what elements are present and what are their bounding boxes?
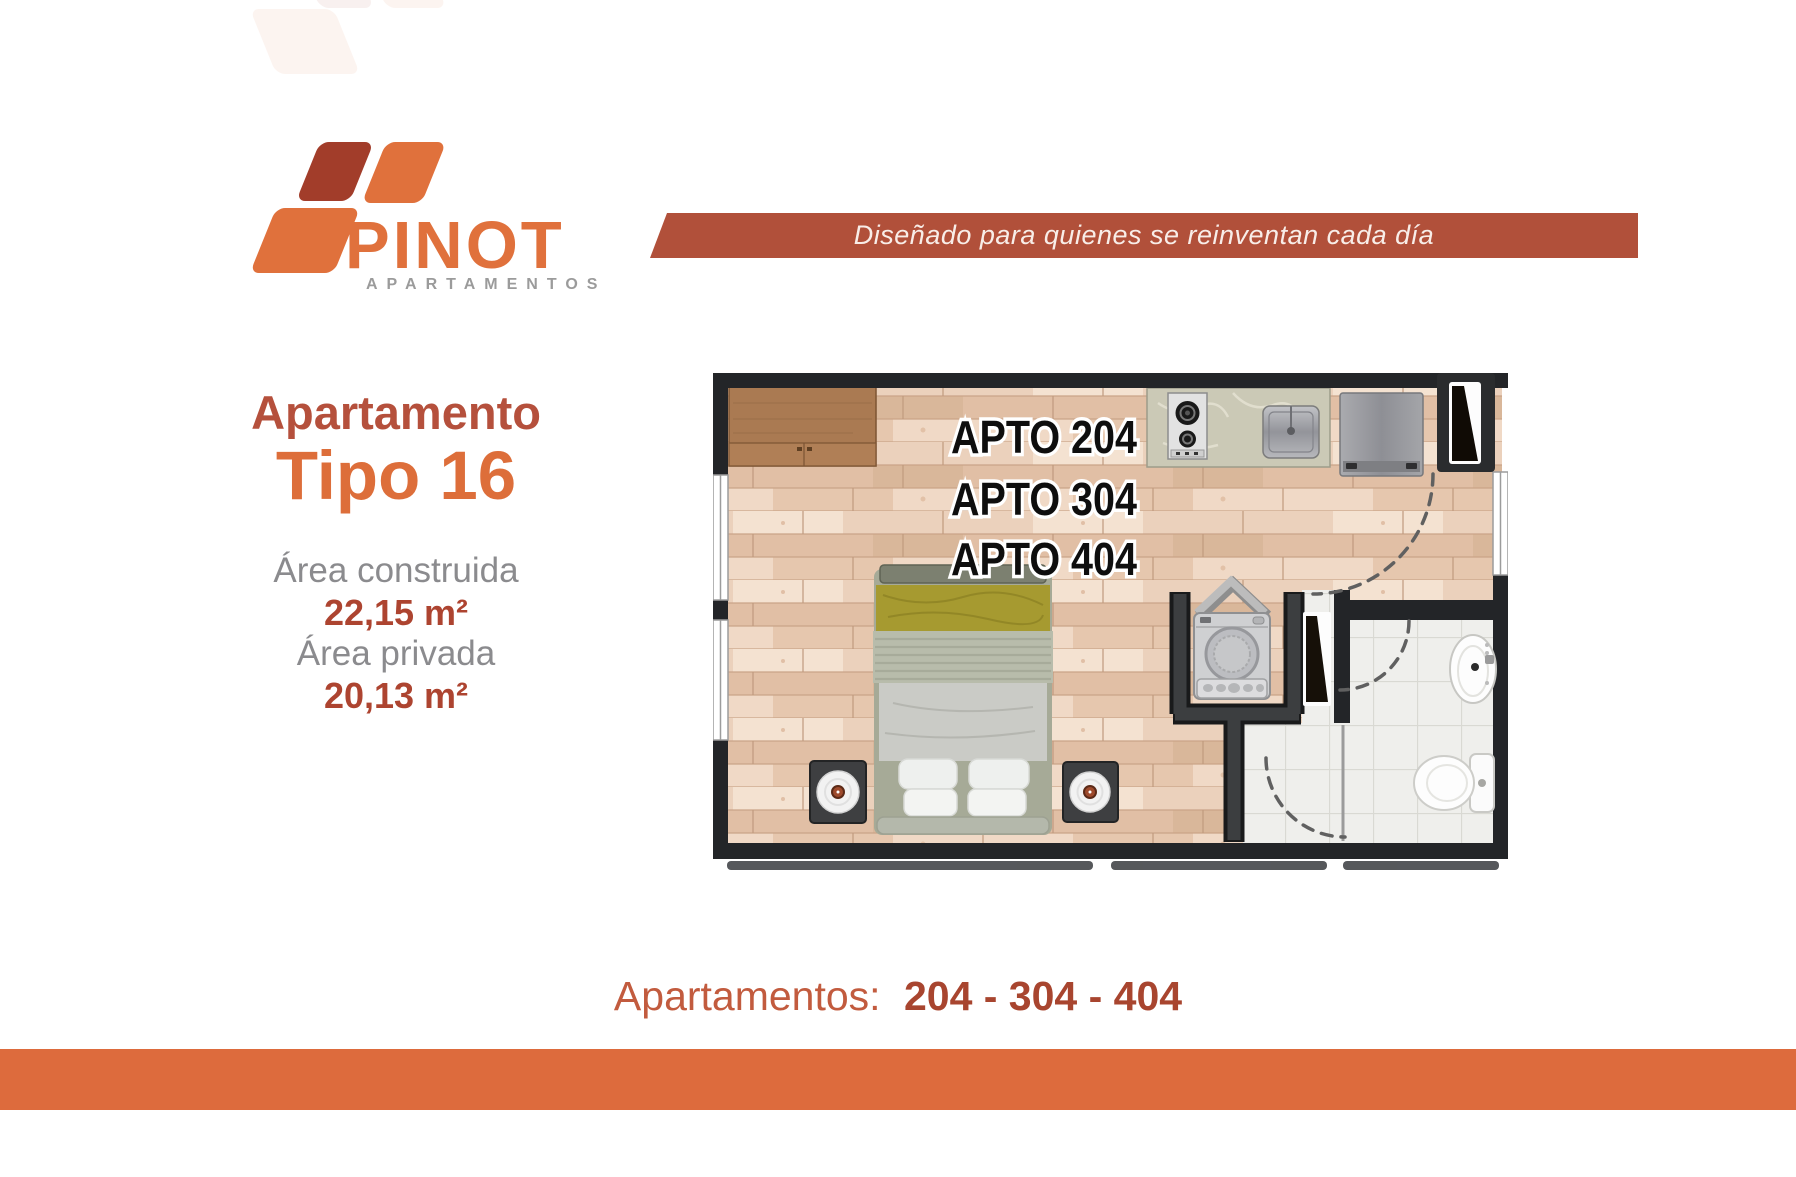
apartment-title-line2: Tipo 16 bbox=[178, 440, 614, 512]
nightstand-left bbox=[810, 761, 866, 823]
logo-parallelogram-dark-icon bbox=[296, 142, 374, 201]
plan-shadow bbox=[727, 861, 1499, 870]
tagline-banner: Diseñado para quienes se reinventan cada… bbox=[650, 213, 1638, 258]
logo-subtitle-text: APARTAMENTOS bbox=[366, 277, 606, 293]
pinot-logo: PINOT APARTAMENTOS bbox=[0, 0, 700, 280]
unit-labels: APTO 204 APTO 304 APTO 404 bbox=[951, 411, 1137, 585]
entry-door bbox=[1437, 373, 1495, 472]
footer-unit-numbers: 204 - 304 - 404 bbox=[904, 973, 1182, 1019]
area-construida-value: 22,15 m² bbox=[178, 594, 614, 632]
unit-label-204: APTO 204 bbox=[951, 411, 1137, 463]
area-privada-value: 20,13 m² bbox=[178, 677, 614, 715]
footer-units-line: Apartamentos: 204 - 304 - 404 bbox=[0, 974, 1796, 1019]
bathroom-door bbox=[1303, 612, 1331, 706]
wardrobe-cabinet bbox=[729, 387, 876, 466]
tagline-text: Diseñado para quienes se reinventan cada… bbox=[854, 220, 1434, 251]
bed-duvet bbox=[879, 683, 1047, 761]
toilet-icon bbox=[1414, 754, 1494, 812]
nightstand-right bbox=[1063, 762, 1118, 822]
cooktop-icon bbox=[1168, 393, 1207, 459]
kitchen-counter bbox=[1147, 376, 1330, 467]
floorplan: APTO 204 APTO 304 APTO 404 bbox=[713, 373, 1508, 873]
logo-brand-text: PINOT bbox=[345, 212, 565, 279]
unit-label-404: APTO 404 bbox=[951, 533, 1137, 585]
area-privada-label: Área privada bbox=[178, 636, 614, 673]
apartment-title-line1: Apartamento bbox=[178, 388, 614, 437]
double-bed bbox=[873, 565, 1053, 835]
footer-bar bbox=[0, 1049, 1796, 1110]
logo-parallelogram-orange-bottom-icon bbox=[250, 208, 360, 273]
washing-machine-icon bbox=[1194, 613, 1270, 699]
fridge-icon bbox=[1340, 393, 1423, 476]
bed-headboard bbox=[877, 817, 1049, 834]
logo-parallelogram-orange-top-icon bbox=[362, 142, 447, 203]
area-construida-label: Área construida bbox=[178, 553, 614, 590]
footer-label: Apartamentos: bbox=[614, 973, 881, 1019]
bathroom-sink-icon bbox=[1450, 635, 1496, 703]
unit-label-304: APTO 304 bbox=[951, 473, 1137, 525]
flyer-page: PINOT APARTAMENTOS Diseñado para quienes… bbox=[0, 0, 1796, 1177]
